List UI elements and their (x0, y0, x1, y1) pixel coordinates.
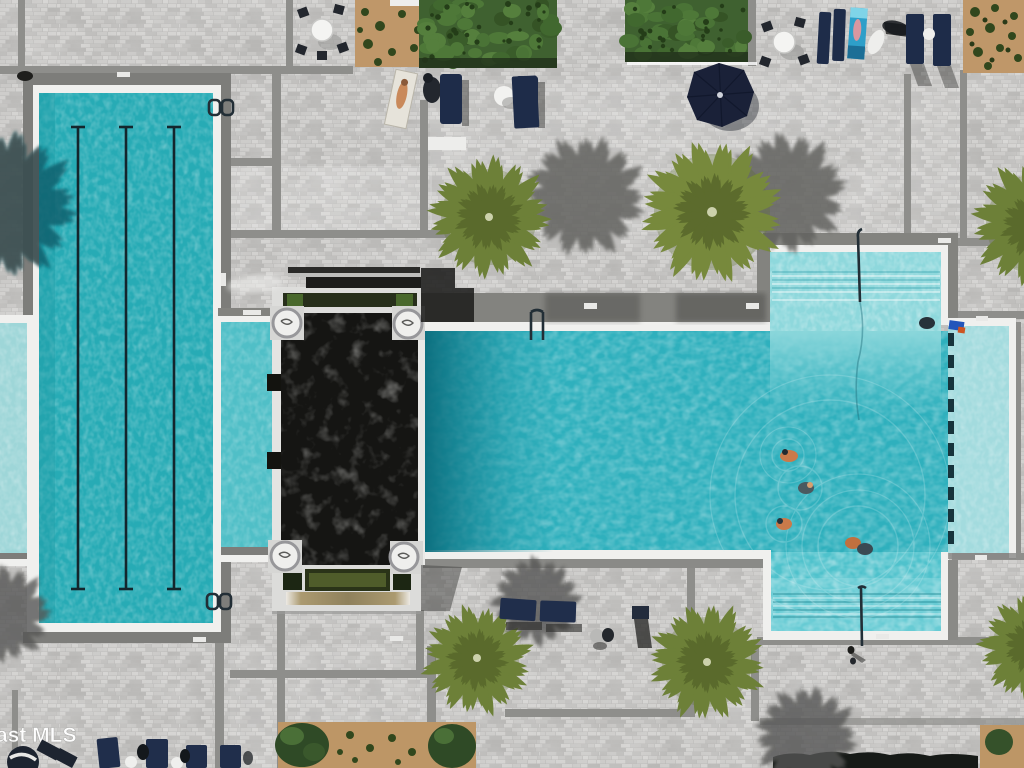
svg-text:ast MLS: ast MLS (0, 724, 77, 747)
